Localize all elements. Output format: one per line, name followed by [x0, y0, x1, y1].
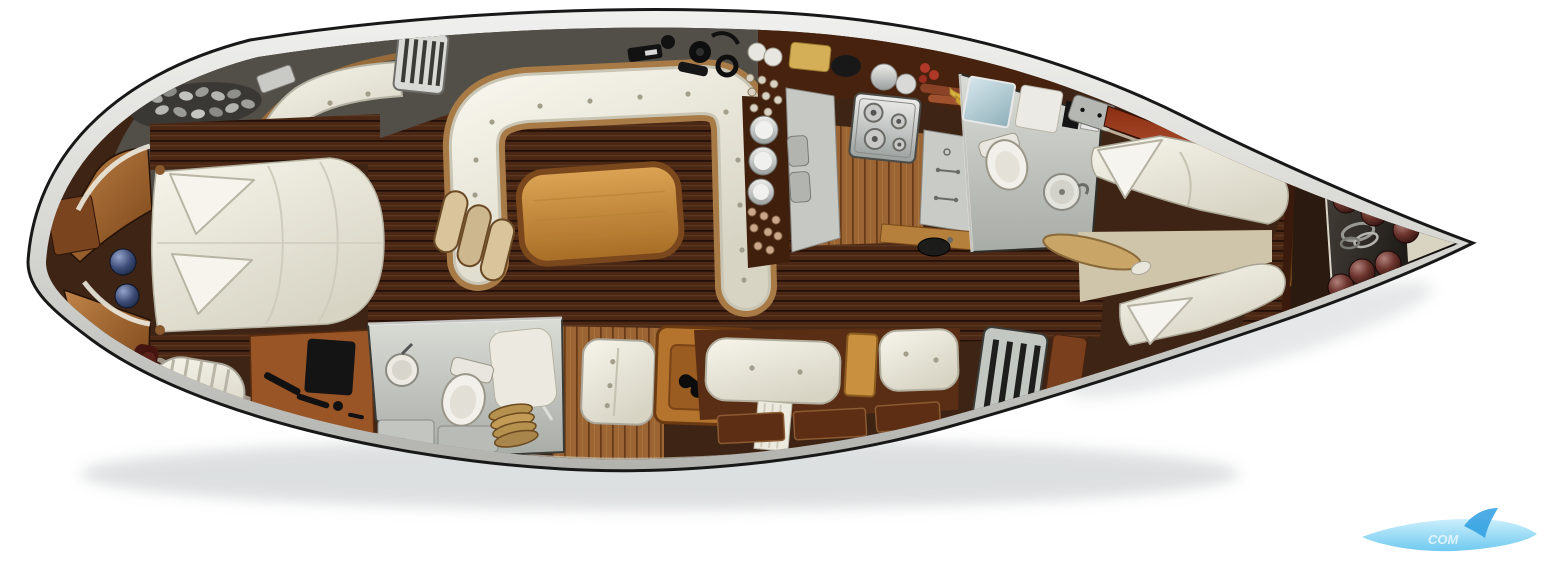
navy-sphere [115, 284, 139, 308]
vanity-tablet [304, 338, 356, 395]
tufting-button [933, 357, 938, 362]
floorplan-svg: Anchor chain Bow seat [0, 0, 1560, 566]
shower-seat [488, 327, 558, 411]
galley-counter-left [786, 88, 840, 252]
mirror [963, 76, 1016, 127]
bread-tray [789, 42, 831, 72]
berth-knob [155, 325, 165, 335]
yacht-floorplan-image: Anchor chain Bow seat [0, 0, 1560, 566]
tufting-button [749, 365, 754, 370]
fridge-lid [789, 171, 811, 202]
tomato [920, 63, 930, 73]
navy-sphere [110, 249, 136, 275]
plate [764, 48, 782, 66]
galley-sink [918, 238, 950, 256]
tufting-button [327, 100, 332, 105]
watermark: COM [1362, 508, 1537, 551]
plate [896, 74, 916, 94]
berth-knob [155, 165, 165, 175]
tufting-button [903, 351, 908, 356]
plate [871, 64, 897, 90]
settee-divider [844, 333, 877, 396]
deck-hatch-grille [393, 30, 449, 95]
nav-seat [581, 339, 656, 425]
stove [849, 93, 921, 164]
vanity-item [333, 401, 343, 411]
fridge-lid [787, 135, 809, 166]
shower-panel [1015, 85, 1064, 134]
plate [748, 43, 766, 61]
tufting-button [797, 369, 802, 374]
kettle [831, 55, 861, 77]
forward-head: Forward bathroom [368, 318, 564, 458]
tomato [929, 70, 939, 80]
salon-table [517, 163, 683, 266]
settee-cushion [879, 329, 959, 392]
tomato [919, 75, 927, 83]
galley-faucet [947, 237, 953, 243]
tufting-button [365, 91, 370, 96]
watermark-text: COM [1428, 532, 1460, 547]
stacked-plates [748, 116, 778, 205]
settee-cushion [705, 338, 841, 405]
